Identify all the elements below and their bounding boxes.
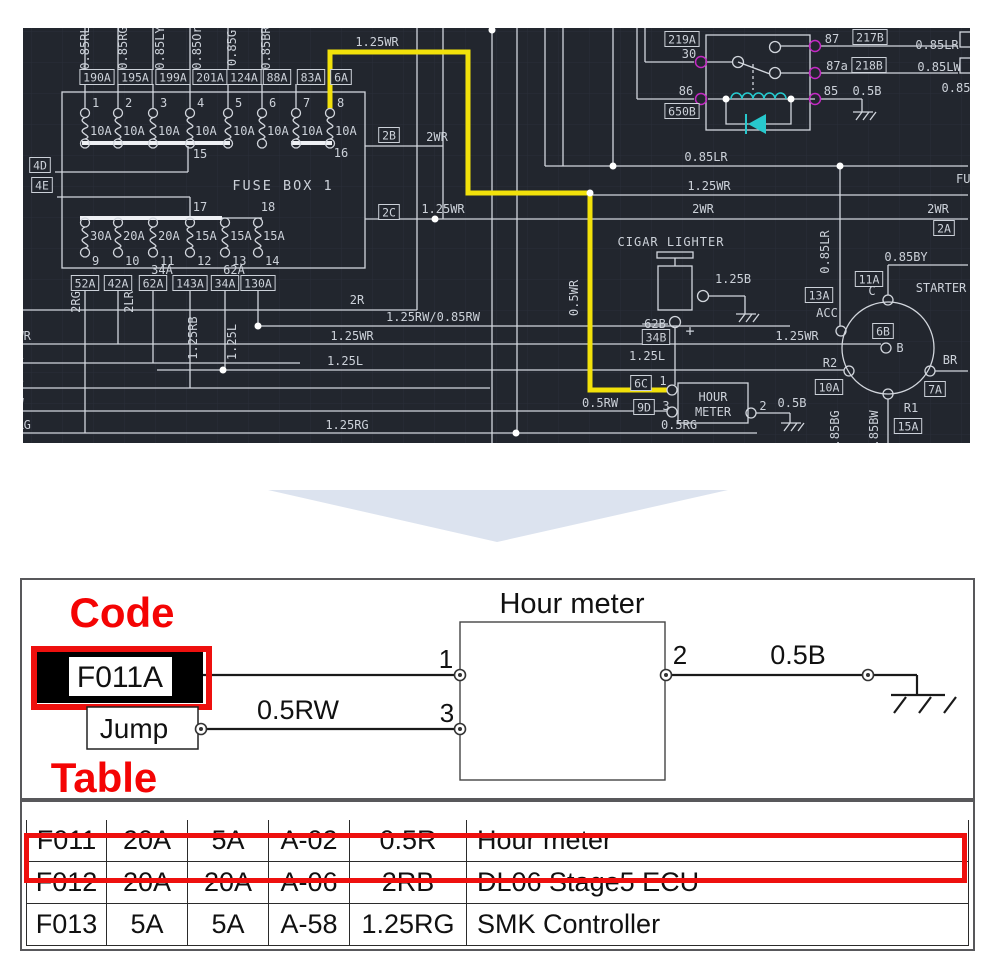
cad-label: 0.85BR bbox=[259, 28, 273, 70]
cad-label: C bbox=[868, 284, 875, 298]
cad-label: FU bbox=[956, 172, 970, 186]
cad-label: METER bbox=[695, 405, 732, 419]
cad-label: 0.85BG bbox=[828, 410, 842, 443]
cad-label: 0.5B bbox=[778, 396, 807, 410]
fuse-rating: 10A bbox=[335, 124, 357, 138]
cad-label: 0.5B bbox=[853, 84, 882, 98]
cad-label: 2RG bbox=[69, 291, 83, 313]
wire-rw-label: 0.5RW bbox=[257, 695, 340, 725]
fuse-rating: 10A bbox=[301, 124, 323, 138]
cad-label: 86 bbox=[679, 84, 693, 98]
cad-boxed-label: 190A bbox=[83, 70, 111, 84]
cad-boxed-label: 88A bbox=[267, 70, 288, 84]
cad-boxed-label: 34A bbox=[215, 276, 236, 290]
cad-label: B bbox=[896, 341, 903, 355]
cad-boxed-label: 34B bbox=[646, 330, 667, 344]
cad-label: 85 bbox=[824, 84, 838, 98]
table-cell: 0.5R bbox=[350, 820, 467, 861]
cad-boxed-label: 62A bbox=[143, 276, 164, 290]
fuse-number: 8 bbox=[337, 96, 344, 110]
cad-boxed-label: 130A bbox=[244, 276, 272, 290]
cad-label: 0.85LW bbox=[917, 60, 961, 74]
fuse-rating: 10A bbox=[233, 124, 255, 138]
pin2-label: 2 bbox=[673, 640, 687, 670]
cad-label: 0.5RG bbox=[661, 418, 697, 432]
fuse-number: 1 bbox=[92, 96, 99, 110]
fuse-table: F01120A5AA-020.5RHour meterF01220A20AA-0… bbox=[26, 820, 969, 946]
cad-boxed-label: 6B bbox=[876, 324, 890, 338]
cad-label: 1.25L bbox=[327, 354, 363, 368]
fuse-code: F011A bbox=[77, 661, 163, 694]
callout-ground-icon bbox=[891, 695, 956, 713]
cad-boxed-label: 195A bbox=[121, 70, 149, 84]
cad-label: 87 bbox=[825, 32, 839, 46]
fuse-rating: 15A bbox=[263, 229, 285, 243]
cad-label: 3 bbox=[662, 399, 669, 413]
cad-label: 1.25WR bbox=[421, 202, 465, 216]
cad-label: 0.85G bbox=[225, 30, 239, 66]
cad-label: 2 bbox=[759, 399, 766, 413]
fuse-rating: 10A bbox=[158, 124, 180, 138]
fuse-rating: 10A bbox=[267, 124, 289, 138]
cad-label: 1.25B bbox=[715, 272, 751, 286]
cad-label: R1 bbox=[904, 401, 918, 415]
cad-label: 0.85LR bbox=[684, 150, 728, 164]
cad-label: 1.25WR bbox=[330, 329, 374, 343]
fuse-number: 7 bbox=[303, 96, 310, 110]
pin1-label: 1 bbox=[439, 644, 453, 674]
cad-label: 0.5WR bbox=[567, 279, 581, 316]
cad-label: 1.25RB bbox=[186, 316, 200, 359]
cad-boxed-label: 10A bbox=[819, 380, 840, 394]
fuse-number: 2 bbox=[125, 96, 132, 110]
cad-boxed-label: 13A bbox=[809, 288, 830, 302]
table-cell: DL06 Stage5 ECU bbox=[467, 862, 968, 903]
cad-boxed-label: 52A bbox=[75, 276, 96, 290]
cad-label: 85L bbox=[23, 348, 24, 362]
fuse-number: 9 bbox=[92, 254, 99, 268]
cad-boxed-label: 42A bbox=[108, 276, 129, 290]
wire-b-label: 0.5B bbox=[770, 640, 826, 670]
cad-label: 2WR bbox=[927, 202, 949, 216]
cad-label: 15 bbox=[193, 147, 207, 161]
cad-boxed-label: 143A bbox=[176, 276, 204, 290]
cad-boxed-label: 15A bbox=[898, 419, 919, 433]
fuse-rating: 10A bbox=[123, 124, 145, 138]
table-cell: 5A bbox=[188, 904, 269, 945]
table-cell: 5A bbox=[188, 820, 269, 861]
cad-label: 34A bbox=[151, 263, 173, 277]
cad-label: 25WR bbox=[23, 329, 32, 343]
cad-label: R2 bbox=[823, 356, 837, 370]
cad-boxed-label: 7A bbox=[928, 382, 942, 396]
cad-label: 0.85 bbox=[942, 81, 970, 95]
cad-label: FUSE BOX 1 bbox=[232, 178, 333, 194]
jump-label: Jump bbox=[100, 713, 168, 744]
table-cell: 5A bbox=[107, 904, 188, 945]
cad-label: 85RG bbox=[23, 418, 31, 432]
cad-label: 62A bbox=[223, 263, 245, 277]
cad-label: + bbox=[685, 322, 694, 340]
fuse-number: 6 bbox=[269, 96, 276, 110]
cad-boxed-label: 6C bbox=[634, 376, 648, 390]
cad-label: 0.85RL bbox=[78, 28, 92, 70]
cad-boxed-label: 2A bbox=[937, 221, 951, 235]
cad-label: 18 bbox=[261, 200, 275, 214]
cad-label: 0.85Or bbox=[190, 28, 204, 70]
table-cell: F011 bbox=[27, 820, 107, 861]
table-row: F01220A20AA-062RBDL06 Stage5 ECU bbox=[26, 862, 969, 904]
table-cell: A-06 bbox=[269, 862, 350, 903]
component-box bbox=[460, 622, 665, 780]
cad-boxed-label: 201A bbox=[196, 70, 224, 84]
cad-boxed-label: 218B bbox=[855, 58, 883, 72]
cad-boxed-label: 83A bbox=[301, 70, 322, 84]
screenshot-root: 110A210A310A410A510A610A710A810A930A1020… bbox=[0, 0, 997, 973]
cad-boxed-label: 4D bbox=[33, 158, 47, 172]
cad-label: STARTER bbox=[916, 281, 967, 295]
fuse-number: 3 bbox=[160, 96, 167, 110]
cad-boxed-label: 4E bbox=[35, 178, 49, 192]
cad-label: 0.85LR bbox=[915, 38, 959, 52]
cad-label: HOUR bbox=[699, 390, 729, 404]
cad-label: 0.5RW bbox=[582, 396, 619, 410]
cad-label: 2LR bbox=[122, 290, 136, 312]
table-cell: 20A bbox=[188, 862, 269, 903]
cad-label: 0.85RG bbox=[116, 28, 130, 70]
fuse-number: 12 bbox=[197, 254, 211, 268]
cad-label: 1.25WR bbox=[775, 329, 819, 343]
table-row: F01120A5AA-020.5RHour meter bbox=[26, 820, 969, 862]
cad-label: 1.25WR bbox=[687, 179, 731, 193]
cad-label: 16 bbox=[334, 146, 348, 160]
fuse-rating: 10A bbox=[195, 124, 217, 138]
cad-boxed-label: 9D bbox=[637, 400, 651, 414]
fuse-rating: 30A bbox=[90, 229, 112, 243]
cad-label: 2R bbox=[350, 293, 365, 307]
table-cell: A-58 bbox=[269, 904, 350, 945]
cad-label: 0.85BW bbox=[867, 410, 881, 443]
cad-label: 5RB bbox=[23, 373, 24, 387]
table-cell: SMK Controller bbox=[467, 904, 968, 945]
cad-boxed-label: 2B bbox=[382, 128, 396, 142]
cad-label: 1.25WR bbox=[355, 35, 399, 49]
cad-label: 2WR bbox=[692, 202, 714, 216]
table-cell: 20A bbox=[107, 862, 188, 903]
cad-boxed-label: 2C bbox=[382, 205, 396, 219]
callout-diagram: Code Table F011A Jump Hour meter bbox=[22, 580, 973, 798]
cad-label: 1 bbox=[659, 374, 666, 388]
cad-label: 1.25L bbox=[225, 324, 239, 360]
callout-panel: Code Table F011A Jump Hour meter bbox=[20, 578, 975, 800]
fuse-number: 14 bbox=[265, 254, 279, 268]
pin3-label: 3 bbox=[440, 698, 454, 728]
table-cell: A-02 bbox=[269, 820, 350, 861]
cad-label: BR bbox=[943, 353, 958, 367]
cad-boxed-label: 199A bbox=[159, 70, 187, 84]
cad-label: ACC bbox=[816, 306, 838, 320]
cad-boxed-label: 217B bbox=[856, 30, 884, 44]
table-cell: F013 bbox=[27, 904, 107, 945]
cad-boxed-label: 650B bbox=[668, 104, 696, 118]
cad-label: 30 bbox=[682, 47, 696, 61]
cad-label: CIGAR LIGHTER bbox=[618, 235, 725, 249]
cad-label: 0.85LR bbox=[818, 230, 832, 274]
code-heading: Code bbox=[70, 589, 175, 636]
cad-boxed-label: 219A bbox=[668, 32, 696, 46]
fuse-number: 10 bbox=[125, 254, 139, 268]
table-heading: Table bbox=[51, 754, 158, 798]
component-title: Hour meter bbox=[499, 588, 644, 620]
cad-label: 0.85BY bbox=[884, 250, 928, 264]
fuse-rating: 20A bbox=[123, 229, 145, 243]
table-cell: Hour meter bbox=[467, 820, 968, 861]
cad-label: 2WR bbox=[426, 130, 448, 144]
cad-label: 1.25RW/0.85RW bbox=[386, 310, 481, 324]
cad-label: 17 bbox=[193, 200, 207, 214]
cad-label: 1.25L bbox=[629, 349, 665, 363]
fuse-rating: 15A bbox=[230, 229, 252, 243]
cad-label: 0.85LY bbox=[153, 28, 167, 70]
fuse-table-panel: F01120A5AA-020.5RHour meterF01220A20AA-0… bbox=[20, 800, 975, 951]
down-arrow bbox=[268, 490, 728, 542]
fuse-rating: 15A bbox=[195, 229, 217, 243]
table-cell: 1.25RG bbox=[350, 904, 467, 945]
cad-label: 1.25RG bbox=[325, 418, 368, 432]
cad-label: 87a bbox=[826, 59, 848, 73]
table-cell: F012 bbox=[27, 862, 107, 903]
table-row: F0135A5AA-581.25RGSMK Controller bbox=[26, 904, 969, 946]
fuse-number: 5 bbox=[235, 96, 242, 110]
table-cell: 20A bbox=[107, 820, 188, 861]
cad-boxed-label: 124A bbox=[230, 70, 258, 84]
table-cell: 2RB bbox=[350, 862, 467, 903]
cad-schematic: 110A210A310A410A510A610A710A810A930A1020… bbox=[23, 28, 970, 443]
fuse-rating: 20A bbox=[158, 229, 180, 243]
fuse-rating: 10A bbox=[90, 124, 112, 138]
cad-boxed-label: 6A bbox=[334, 70, 348, 84]
fuse-number: 4 bbox=[197, 96, 204, 110]
